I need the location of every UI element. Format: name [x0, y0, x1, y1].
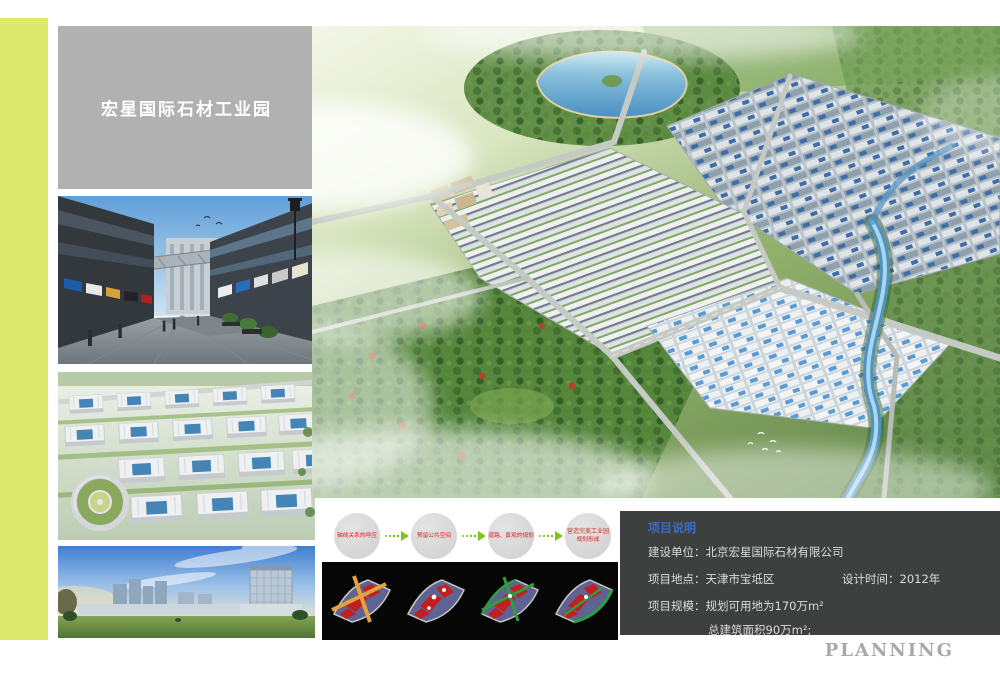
site-diagrams [322, 562, 618, 640]
project-info-box: 项目说明 建设单位：北京宏星国际石材有限公司 项目地点：天津市宝坻区 设计时间：… [620, 511, 1000, 635]
masterplan-image [312, 26, 1000, 498]
skyline-photo [58, 546, 315, 638]
diagram-axes [332, 576, 390, 622]
flow-step-4-sublabel: 规划形成 [577, 536, 600, 544]
planning-watermark: PLANNING [825, 640, 954, 661]
info-row-floor-area: 总建筑面积90万m²; [708, 622, 811, 638]
flow-step-1: 轴线关系的呼应 [334, 513, 380, 559]
owner-value: 北京宏星国际石材有限公司 [706, 545, 844, 559]
flow-step-2: 预留公共空间 [411, 513, 457, 559]
flow-arrow-icon [538, 530, 564, 542]
floor-area-value: 总建筑面积90万m²; [708, 623, 811, 637]
flow-arrow-icon [461, 530, 487, 542]
flow-step-3: 道路、景观的规划 [488, 513, 534, 559]
flow-step-4-label: 营造完美工业园 [567, 528, 609, 536]
design-time-label: 设计时间： [842, 572, 900, 586]
flow-step-4: 营造完美工业园 规划形成 [565, 513, 611, 559]
scale-value: 规划可用地为170万m² [706, 599, 824, 613]
info-row-scale: 项目规模：规划可用地为170万m² [648, 598, 824, 614]
campus-rendering-image [58, 372, 315, 540]
info-row-owner: 建设单位：北京宏星国际石材有限公司 [648, 544, 844, 560]
masterplan-rendering [312, 26, 1000, 498]
diagram-nodes [408, 580, 464, 622]
concept-diagram-strip [322, 562, 618, 640]
title-box: 宏星国际石材工业园 [58, 26, 315, 189]
scale-label: 项目规模： [648, 599, 706, 613]
flow-step-2-label: 预留公共空间 [417, 532, 451, 540]
diagram-landscape [556, 580, 612, 622]
owner-label: 建设单位： [648, 545, 706, 559]
diagram-roads [482, 577, 538, 622]
concept-flow: 轴线关系的呼应 预留公共空间 道路、景观的规划 营造完美工业园 规划形成 [322, 512, 620, 562]
design-time-value: 2012年 [900, 572, 941, 586]
skyline-rendering-image [58, 546, 315, 638]
location-label: 项目地点： [648, 572, 706, 586]
flow-step-1-label: 轴线关系的呼应 [337, 532, 377, 540]
info-row-design-time: 设计时间：2012年 [842, 571, 940, 587]
page-title: 宏星国际石材工业园 [101, 95, 272, 120]
info-title: 项目说明 [648, 519, 696, 536]
circular-plaza [74, 476, 126, 528]
street-view-photo [58, 196, 315, 364]
accent-stripe [0, 18, 48, 640]
location-value: 天津市宝坻区 [706, 572, 775, 586]
flow-step-3-label: 道路、景观的规划 [488, 532, 534, 540]
aerial-campus-photo [58, 372, 315, 540]
flow-arrow-icon [384, 530, 410, 542]
info-row-location: 项目地点：天津市宝坻区 [648, 571, 775, 587]
street-rendering-image [58, 196, 315, 364]
presentation-board: 宏星国际石材工业园 [0, 0, 1000, 678]
